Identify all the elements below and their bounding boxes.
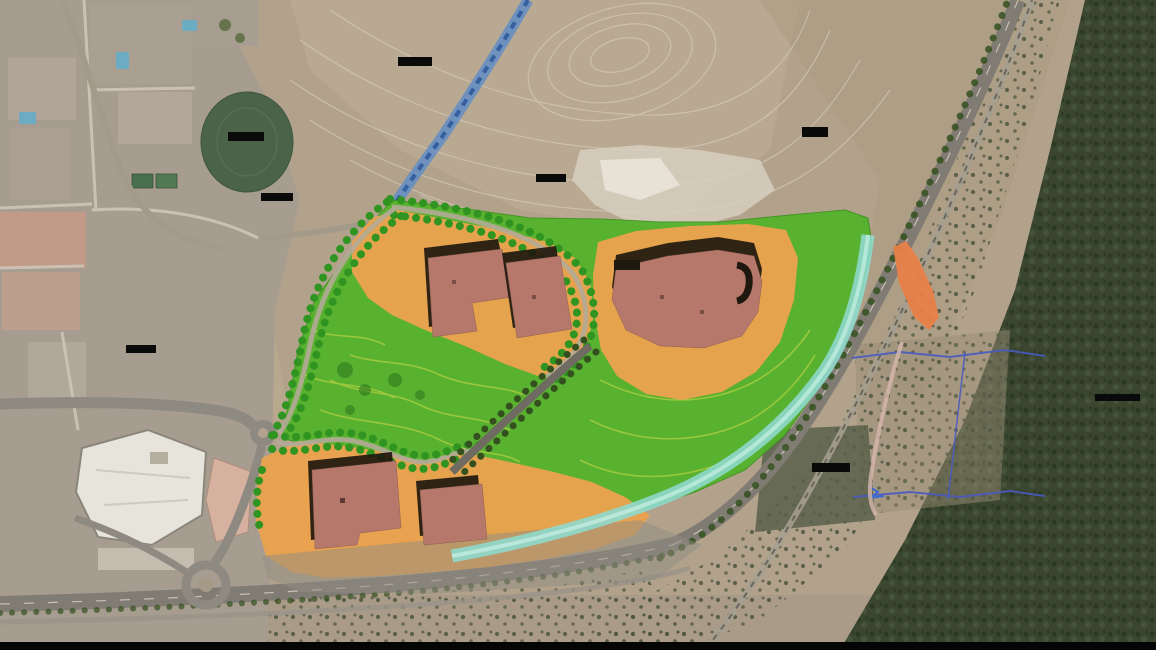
redacted-label: [261, 193, 293, 201]
redacted-label: [536, 174, 566, 182]
swimming-pool: [182, 20, 197, 31]
shrub: [359, 384, 371, 396]
roof-detail: [532, 295, 536, 299]
roof-detail: [452, 280, 456, 284]
shrub: [415, 390, 425, 400]
tree-cluster: [219, 19, 231, 31]
sports-court: [156, 174, 177, 188]
redacted-label: [812, 463, 850, 472]
oval-park: [201, 92, 293, 192]
shrub: [337, 362, 353, 378]
city-block: [90, 6, 192, 84]
roof-detail: [700, 310, 704, 314]
swimming-pool: [116, 52, 129, 69]
aerial-map-image: [0, 0, 1156, 650]
sports-court: [132, 174, 153, 188]
city-block: [28, 342, 86, 404]
roundabout-south-island: [199, 578, 213, 592]
tree-cluster: [235, 33, 245, 43]
building-shadow-wing: [614, 260, 640, 270]
redacted-label: [802, 127, 828, 137]
shrub: [388, 373, 402, 387]
city-block: [10, 128, 70, 200]
city-block: [118, 92, 192, 144]
mall-rooftop-unit: [150, 452, 168, 464]
roof-detail: [660, 295, 664, 299]
building: [506, 256, 572, 338]
roundabout-north-island: [258, 428, 268, 438]
bottom-border: [0, 642, 1156, 650]
city-block: [8, 58, 76, 120]
building: [420, 484, 487, 545]
city-block: [0, 212, 86, 268]
map-canvas: [0, 0, 1156, 650]
redacted-label: [126, 345, 156, 353]
urban-street: [88, 88, 195, 90]
redacted-label: [228, 132, 264, 141]
building-cluster-east: [612, 237, 762, 348]
urban-street: [0, 266, 84, 268]
redacted-label: [1095, 394, 1140, 401]
swimming-pool: [19, 112, 36, 124]
roof-detail: [340, 498, 345, 503]
shrub: [345, 405, 355, 415]
redacted-label: [398, 57, 432, 66]
city-block: [2, 272, 80, 330]
